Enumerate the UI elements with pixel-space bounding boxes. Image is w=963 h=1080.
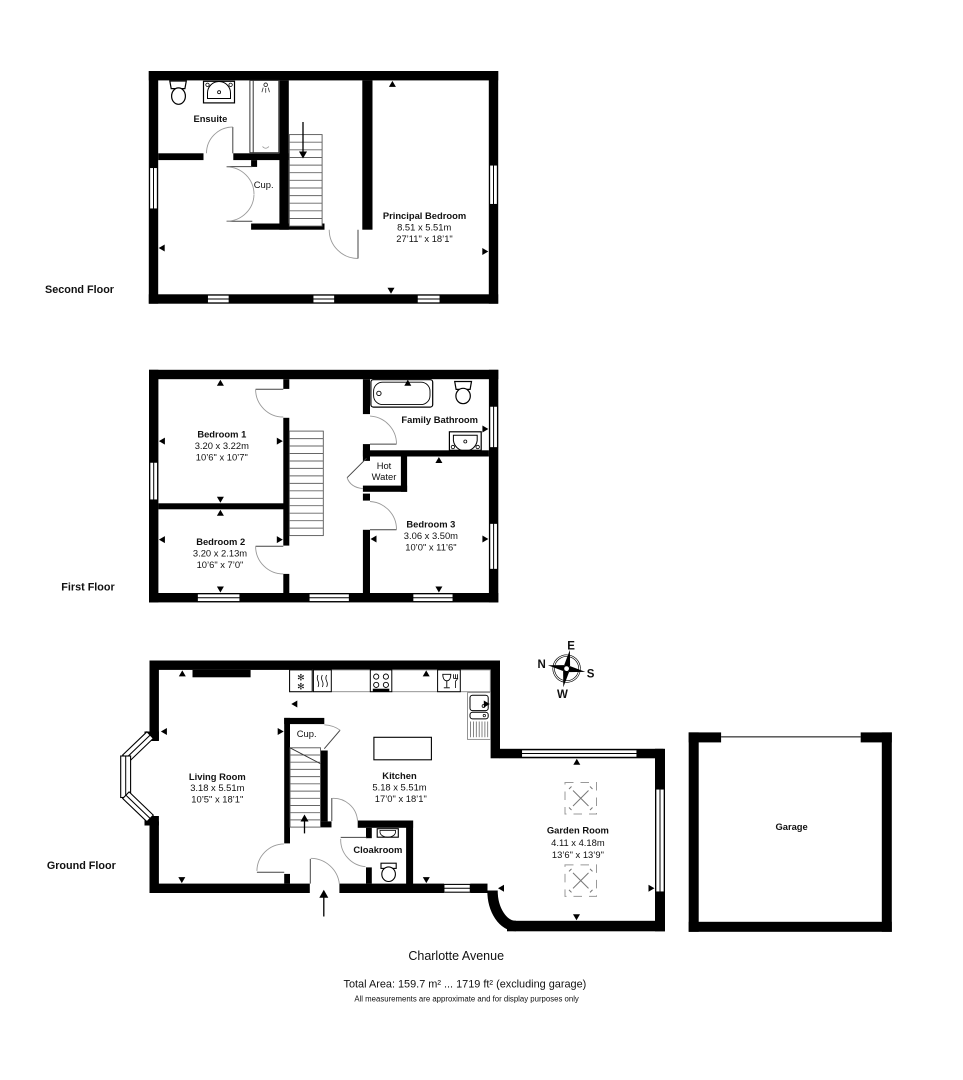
svg-text:Ensuite: Ensuite xyxy=(193,113,227,124)
svg-text:Garden Room: Garden Room xyxy=(547,824,609,835)
svg-text:Total Area: 159.7 m² ... 1719: Total Area: 159.7 m² ... 1719 ft² (exclu… xyxy=(344,979,587,991)
svg-text:Hot: Hot xyxy=(377,460,392,471)
svg-text:10’5" x 18’1": 10’5" x 18’1" xyxy=(191,794,243,805)
svg-text:8.51 x 5.51m: 8.51 x 5.51m xyxy=(397,222,451,233)
svg-text:Principal Bedroom: Principal Bedroom xyxy=(383,210,466,221)
svg-text:10’0" x 11’6": 10’0" x 11’6" xyxy=(405,542,456,553)
svg-text:5.18 x 5.51m: 5.18 x 5.51m xyxy=(372,782,426,793)
svg-text:Bedroom 3: Bedroom 3 xyxy=(406,519,455,530)
svg-text:4.11 x 4.18m: 4.11 x 4.18m xyxy=(551,837,605,848)
svg-text:Water: Water xyxy=(372,471,397,482)
svg-text:27’11" x 18’1": 27’11" x 18’1" xyxy=(396,233,453,244)
svg-text:E: E xyxy=(567,641,575,653)
svg-text:17’0" x 18’1": 17’0" x 18’1" xyxy=(375,793,427,804)
svg-text:Charlotte Avenue: Charlotte Avenue xyxy=(408,949,504,963)
svg-text:3.20 x 2.13m: 3.20 x 2.13m xyxy=(193,548,247,559)
svg-text:First Floor: First Floor xyxy=(61,581,115,593)
svg-text:Garage: Garage xyxy=(775,821,807,832)
svg-text:Cup.: Cup. xyxy=(254,179,274,190)
svg-text:Kitchen: Kitchen xyxy=(382,770,417,781)
svg-text:13’6" x 13’9": 13’6" x 13’9" xyxy=(552,849,604,860)
svg-text:All measurements are approxima: All measurements are approximate and for… xyxy=(354,995,579,1004)
svg-text:✻: ✻ xyxy=(297,682,305,692)
svg-text:3.18 x 5.51m: 3.18 x 5.51m xyxy=(190,782,244,793)
svg-text:W: W xyxy=(557,689,568,701)
svg-text:Bedroom 2: Bedroom 2 xyxy=(196,536,245,547)
svg-text:S: S xyxy=(587,669,595,681)
svg-text:10’6" x 7’0": 10’6" x 7’0" xyxy=(197,559,244,570)
svg-text:Ground Floor: Ground Floor xyxy=(47,860,117,872)
svg-text:Second Floor: Second Floor xyxy=(45,284,115,296)
svg-text:Family Bathroom: Family Bathroom xyxy=(401,414,478,425)
svg-text:3.06 x 3.50m: 3.06 x 3.50m xyxy=(404,530,458,541)
svg-text:Cloakroom: Cloakroom xyxy=(353,844,402,855)
svg-text:Cup.: Cup. xyxy=(297,728,317,739)
svg-text:Bedroom 1: Bedroom 1 xyxy=(197,428,246,439)
svg-text:3.20 x 3.22m: 3.20 x 3.22m xyxy=(195,440,249,451)
svg-text:N: N xyxy=(537,659,545,671)
svg-text:10’6" x 10’7": 10’6" x 10’7" xyxy=(196,451,248,462)
svg-text:Living Room: Living Room xyxy=(189,771,246,782)
